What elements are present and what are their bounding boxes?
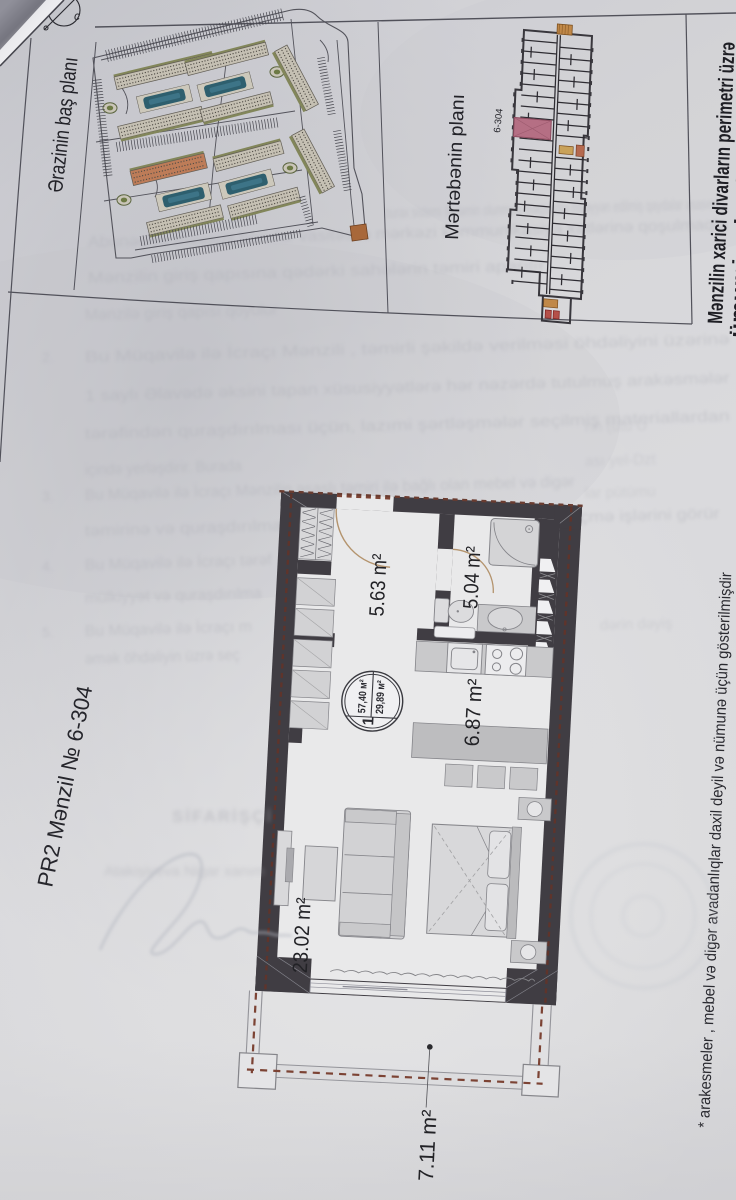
svg-text:rın (ütu U: rın (ütu U (585, 417, 648, 436)
svg-text:5.63 m²: 5.63 m² (365, 553, 391, 617)
svg-text:ası yel-Dzt: ası yel-Dzt (585, 451, 657, 470)
svg-text:2.: 2. (42, 349, 54, 365)
svg-text:5.04 m²: 5.04 m² (459, 546, 485, 610)
svg-text:dərin dəyiş: dərin dəyiş (600, 615, 673, 634)
svg-text:6.87 m²: 6.87 m² (460, 678, 487, 747)
svg-text:23.02 m²: 23.02 m² (289, 897, 316, 974)
svg-text:3.: 3. (42, 488, 54, 504)
svg-text:Atakişiyeva Nigar xanım: Atakişiyeva Nigar xanım (104, 863, 265, 880)
svg-text:57,40 м²: 57,40 м² (356, 679, 370, 714)
svg-text:5.: 5. (42, 624, 54, 640)
svg-text:4.: 4. (42, 558, 54, 574)
svg-text:lar pütümu: lar pütümu (585, 483, 656, 502)
svg-text:c: c (74, 9, 80, 23)
svg-text:SİFARİŞÇİ: SİFARİŞÇİ (172, 807, 273, 826)
svg-text:7.11 m²: 7.11 m² (415, 1109, 442, 1182)
svg-text:29,89 м²: 29,89 м² (374, 680, 388, 715)
svg-text:1: 1 (360, 716, 378, 726)
